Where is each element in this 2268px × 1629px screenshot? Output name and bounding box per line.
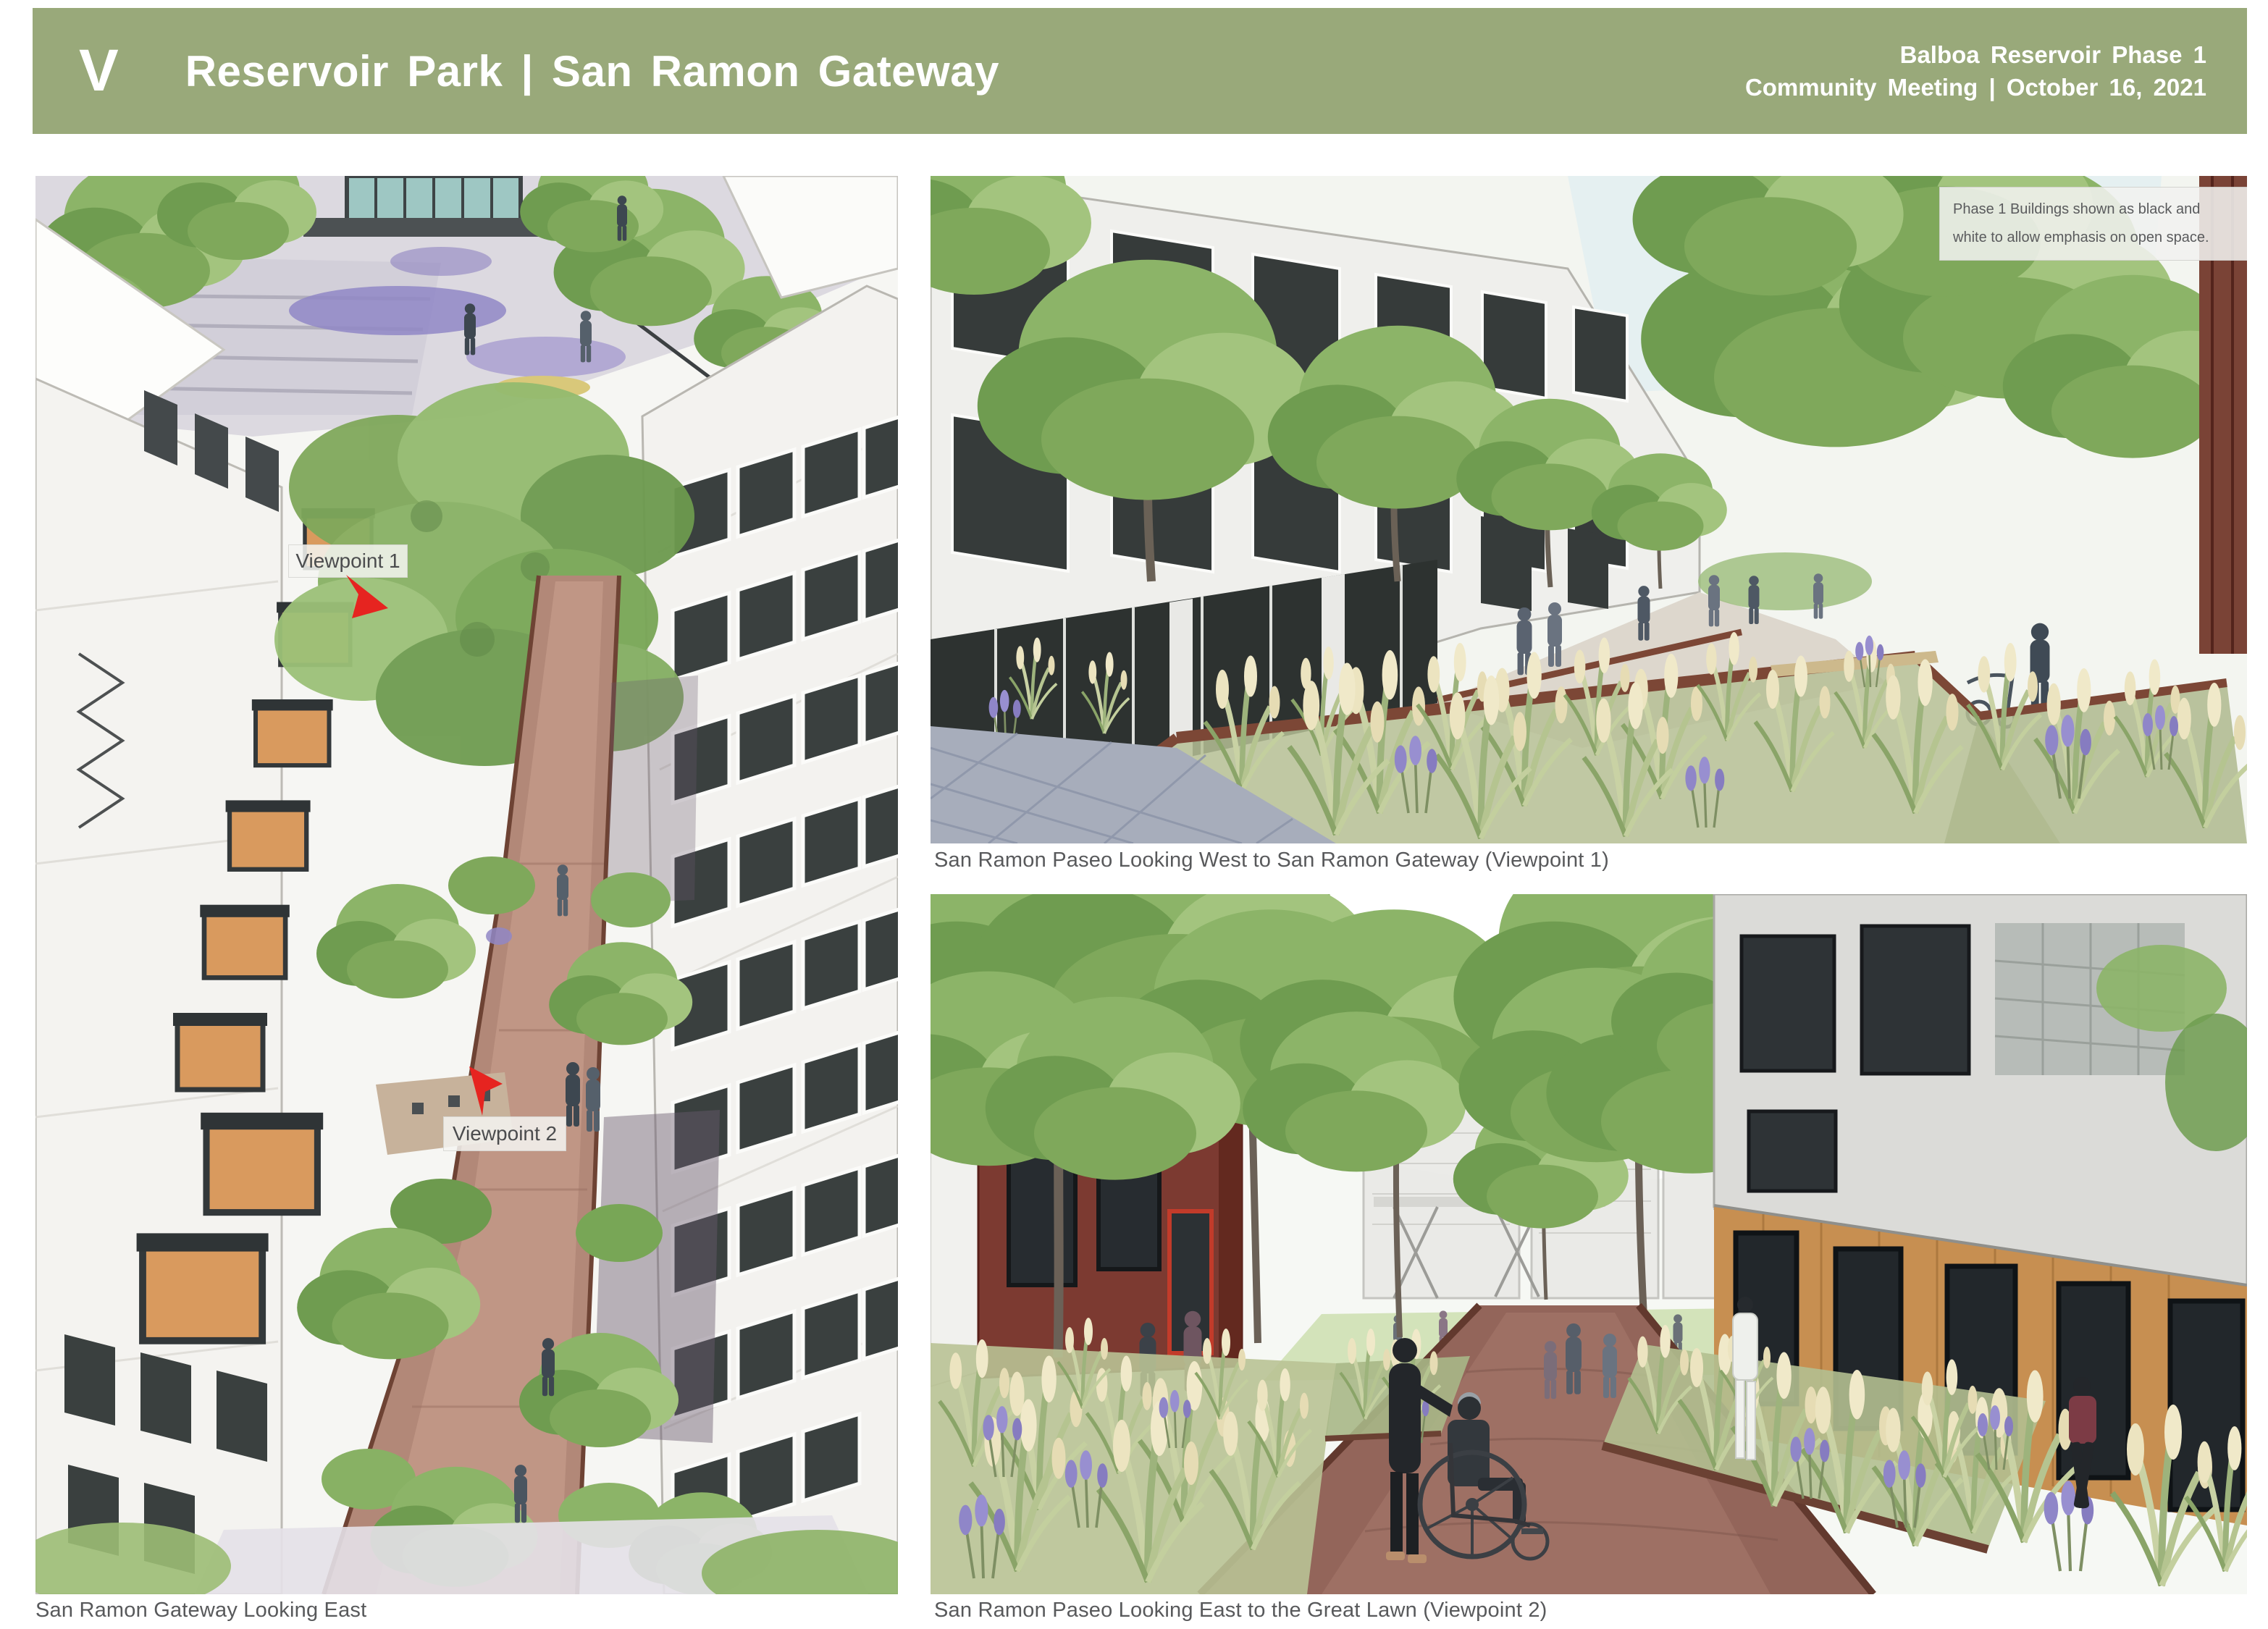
slide-header: V Reservoir Park | San Ramon Gateway Bal… bbox=[33, 8, 2247, 134]
viewpoint-1-label: Viewpoint 1 bbox=[288, 544, 408, 578]
viewpoint-2-text: Viewpoint 2 bbox=[453, 1122, 557, 1145]
viewpoint-1-scene bbox=[931, 176, 2247, 843]
viewpoint-2-rendering bbox=[931, 894, 2247, 1594]
viewpoint-1-text: Viewpoint 1 bbox=[295, 550, 400, 573]
slide-title: Reservoir Park | San Ramon Gateway bbox=[185, 46, 999, 96]
phase1-note-text: Phase 1 Buildings shown as black and whi… bbox=[1953, 201, 2209, 245]
aerial-caption: San Ramon Gateway Looking East bbox=[35, 1599, 366, 1622]
viewpoint-2-caption: San Ramon Paseo Looking East to the Grea… bbox=[934, 1599, 1547, 1622]
viewpoint-2-scene bbox=[931, 894, 2247, 1594]
viewpoint-2-arrow-icon bbox=[468, 1065, 508, 1117]
aerial-scene bbox=[35, 176, 898, 1594]
presentation-slide: { "slide": { "header": { "logo": "V", "t… bbox=[0, 0, 2268, 1629]
bottom-paving bbox=[35, 1515, 898, 1594]
aerial-rendering: Viewpoint 1 Viewpoint 2 bbox=[35, 176, 898, 1594]
v-logo: V bbox=[79, 41, 119, 101]
phase1-note: Phase 1 Buildings shown as black and whi… bbox=[1939, 187, 2247, 261]
meeting-project-line: Balboa Reservoir Phase 1 bbox=[1745, 38, 2206, 71]
viewpoint-1-rendering: Phase 1 Buildings shown as black and whi… bbox=[931, 176, 2247, 843]
viewpoint-1-caption: San Ramon Paseo Looking West to San Ramo… bbox=[934, 849, 1609, 872]
meeting-info: Balboa Reservoir Phase 1 Community Meeti… bbox=[1745, 38, 2206, 104]
meeting-date-line: Community Meeting | October 16, 2021 bbox=[1745, 71, 2206, 104]
viewpoint-2-label: Viewpoint 2 bbox=[443, 1116, 566, 1151]
viewpoint-1-arrow-icon bbox=[342, 575, 392, 620]
person-in-white bbox=[1733, 1297, 1757, 1460]
